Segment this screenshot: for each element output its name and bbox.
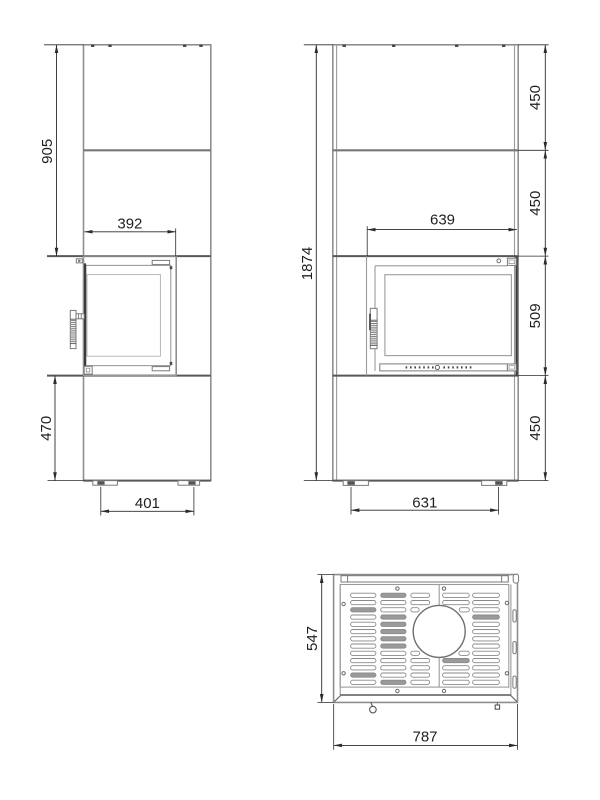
svg-text:450: 450: [527, 416, 544, 441]
svg-text:401: 401: [135, 495, 160, 512]
svg-text:1874: 1874: [299, 247, 316, 280]
svg-text:450: 450: [527, 191, 544, 216]
svg-text:450: 450: [527, 85, 544, 110]
svg-text:905: 905: [39, 139, 56, 164]
svg-text:547: 547: [304, 626, 321, 651]
svg-text:639: 639: [430, 212, 455, 229]
svg-text:470: 470: [38, 416, 55, 441]
svg-text:392: 392: [117, 215, 142, 232]
svg-text:509: 509: [527, 303, 544, 328]
svg-text:787: 787: [412, 728, 437, 745]
svg-text:631: 631: [412, 495, 437, 512]
